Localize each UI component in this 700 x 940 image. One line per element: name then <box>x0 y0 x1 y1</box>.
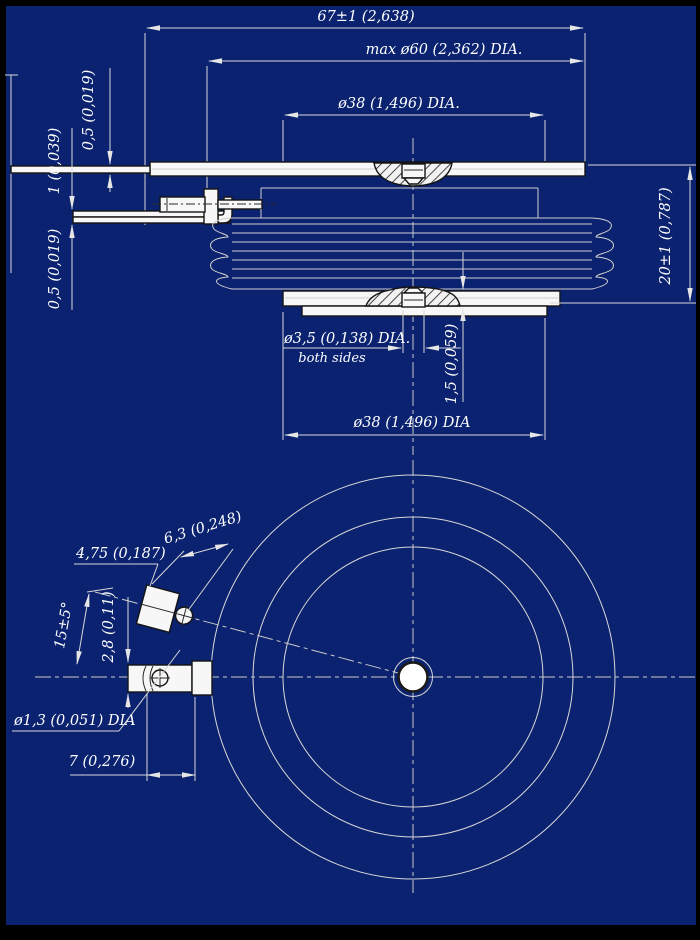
dim-67-label: 67±1 (2,638) <box>317 9 414 25</box>
dim-thk-top-label: 0,5 (0,019) <box>81 70 97 151</box>
dim-boss-height-label: 1,5 (0,059) <box>444 324 460 405</box>
top-gate-notch <box>402 164 425 178</box>
engineering-drawing-page: 67±1 (2,638) max ø60 (2,362) DIA. ø38 (1… <box>0 0 700 940</box>
dim-38-top-label: ø38 (1,496) DIA. <box>337 96 460 112</box>
dim-38-bottom-label: ø38 (1,496) DIA <box>352 415 470 431</box>
dim-thk-bot-label: 0,5 (0,019) <box>47 229 63 310</box>
technical-drawing: 67±1 (2,638) max ø60 (2,362) DIA. ø38 (1… <box>0 0 700 940</box>
dim-block-width-label: 4,75 (0,187) <box>75 546 166 562</box>
dim-gate-hole-note: both sides <box>298 351 366 366</box>
gate-collar <box>204 189 218 224</box>
dim-tip-length-label: 7 (0,276) <box>69 754 136 770</box>
dim-lead-offset-label: 2,8 (0,11) <box>101 591 117 663</box>
dim-height-label: 20±1 (0,787) <box>658 187 674 285</box>
dim-60-label: max ø60 (2,362) DIA. <box>366 42 523 58</box>
center-hole <box>399 663 428 692</box>
dim-terminal-hole-label: ø1,3 (0,051) DIA <box>13 713 136 729</box>
plan-lead-terminal <box>128 661 212 695</box>
lead-terminal-flag <box>192 661 212 695</box>
dim-gate-hole-label: ø3,5 (0,138) DIA. <box>283 331 410 347</box>
cathode-lead-strip <box>11 166 150 173</box>
dim-thk-mid-label: 1 (0,039) <box>47 128 63 195</box>
